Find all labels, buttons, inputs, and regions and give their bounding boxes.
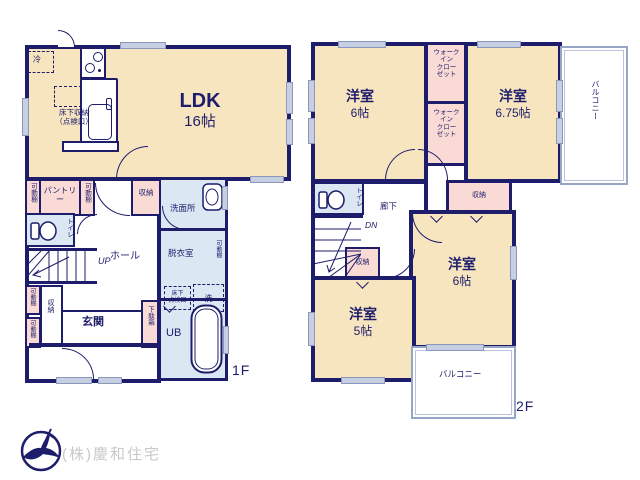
door-fin-kitchen xyxy=(58,30,75,47)
window-mark xyxy=(222,186,228,210)
entrance-label: 玄関 xyxy=(82,316,104,329)
unit-bath-label: UB xyxy=(166,327,181,340)
window-mark xyxy=(338,41,386,48)
window-mark xyxy=(556,118,563,144)
ldk-size-label: 16帖 xyxy=(150,113,250,130)
toilet-label-1f: トイレ xyxy=(65,218,72,238)
movable-shelf-label: 可動棚 xyxy=(29,320,35,338)
toilet-room-2f: トイレ xyxy=(313,182,364,215)
movable-shelf-label: 可動棚 xyxy=(83,183,90,203)
refrigerator-label: 冷 xyxy=(33,55,41,64)
window-mark xyxy=(286,82,293,114)
down-label: DN xyxy=(365,221,377,231)
stairs-storage-1f: 収納 xyxy=(40,285,63,347)
underfloor-storage-hatch xyxy=(54,86,82,107)
balcony-bottom-label: バルコニー xyxy=(439,370,481,380)
wall-washroom-dressing xyxy=(161,228,225,231)
window-mark xyxy=(120,42,166,49)
shoe-box-label: 下駄箱 xyxy=(146,306,153,326)
shoe-box: 下駄箱 xyxy=(141,300,159,348)
porch-wall xyxy=(29,343,157,347)
bedroom-a-size: 6帖 xyxy=(330,107,390,121)
wic-label: ウォーク イン クロー ゼット xyxy=(428,49,465,79)
window-mark xyxy=(477,41,521,48)
washer-label: 洗 xyxy=(194,294,223,303)
window-mark xyxy=(223,326,229,354)
window-mark xyxy=(56,377,92,384)
balcony-right: バルコニー xyxy=(560,46,628,185)
window-mark xyxy=(286,119,293,145)
balcony-bottom: バルコニー xyxy=(411,346,516,419)
movable-shelf-3: 可動棚 xyxy=(25,285,41,315)
corridor-label: 廊下 xyxy=(380,202,397,212)
floor-label-2f: 2F xyxy=(516,398,534,414)
window-mark xyxy=(308,118,315,144)
stove-icon xyxy=(80,47,106,79)
floor-label-1f: 1F xyxy=(232,362,250,378)
bedroom-c-size: 6帖 xyxy=(432,275,492,289)
washroom-label: 洗面所 xyxy=(170,204,196,214)
movable-shelf-2: 可動棚 xyxy=(79,179,95,216)
corridor-storage-2f: 収納 xyxy=(446,180,512,213)
movable-shelf-label: 可動棚 xyxy=(215,240,221,258)
wic-label: ウォーク イン クロー ゼット xyxy=(428,109,465,139)
company-name: (株)慶和住宅 xyxy=(62,446,161,463)
dressing-room-label: 脱衣室 xyxy=(168,249,194,259)
movable-shelf-label: 可動棚 xyxy=(29,183,36,203)
balcony-right-label: バルコニー xyxy=(591,80,599,120)
movable-shelf-label: 可動棚 xyxy=(29,288,35,306)
ldk-label: LDK xyxy=(150,90,250,113)
pantry: パントリー xyxy=(39,179,81,216)
corridor-storage-label: 収納 xyxy=(449,192,509,200)
bedroom-d-size: 5帖 xyxy=(333,325,393,339)
hall-label: ホール xyxy=(110,251,140,263)
bedroom-a-label: 洋室 xyxy=(330,88,390,104)
bedroom-b-size: 6.75帖 xyxy=(483,107,543,121)
kitchen-counter-base xyxy=(62,141,119,152)
toilet-room-1f: トイレ xyxy=(25,213,75,247)
bedroom-d-label: 洋室 xyxy=(333,306,393,322)
stairs-down-2f xyxy=(313,215,363,281)
window-mark xyxy=(556,80,563,112)
window-mark xyxy=(98,377,122,384)
window-mark xyxy=(426,344,484,351)
toilet-label-2f: トイレ xyxy=(354,187,361,207)
company-logo-bird-icon xyxy=(16,426,66,474)
pantry-label: パントリー xyxy=(42,186,78,204)
window-mark xyxy=(341,377,385,384)
entrance-step-line xyxy=(61,310,143,312)
toilet-icon xyxy=(318,188,346,212)
refrigerator-space: 冷 xyxy=(28,51,54,73)
washbasin-icon xyxy=(202,183,223,211)
window-mark xyxy=(510,246,517,280)
window-mark xyxy=(250,176,284,183)
hall-storage-label: 収納 xyxy=(133,189,159,198)
stairs-up-1f xyxy=(25,248,97,284)
hall-storage: 収納 xyxy=(131,179,161,216)
window-mark xyxy=(308,312,315,346)
bedroom-b-label: 洋室 xyxy=(483,88,543,104)
floor-plan-canvas: 冷 床下収納 （点検口） LDK 16帖 可動棚 パントリー 可動棚 収納 トイ… xyxy=(0,0,640,480)
bathtub-icon xyxy=(190,304,223,374)
underfloor-storage-label: 床下収納 （点検口） xyxy=(40,109,108,126)
window-mark xyxy=(22,98,29,136)
up-label: UP xyxy=(98,256,111,266)
stairs-storage-2f-label: 収納 xyxy=(347,259,378,267)
window-mark xyxy=(308,80,315,112)
bedroom-c-label: 洋室 xyxy=(432,256,492,272)
walk-in-closet-1: ウォーク イン クロー ゼット xyxy=(425,42,468,104)
stairs-storage-label: 収納 xyxy=(47,299,54,313)
toilet-icon xyxy=(30,219,58,243)
